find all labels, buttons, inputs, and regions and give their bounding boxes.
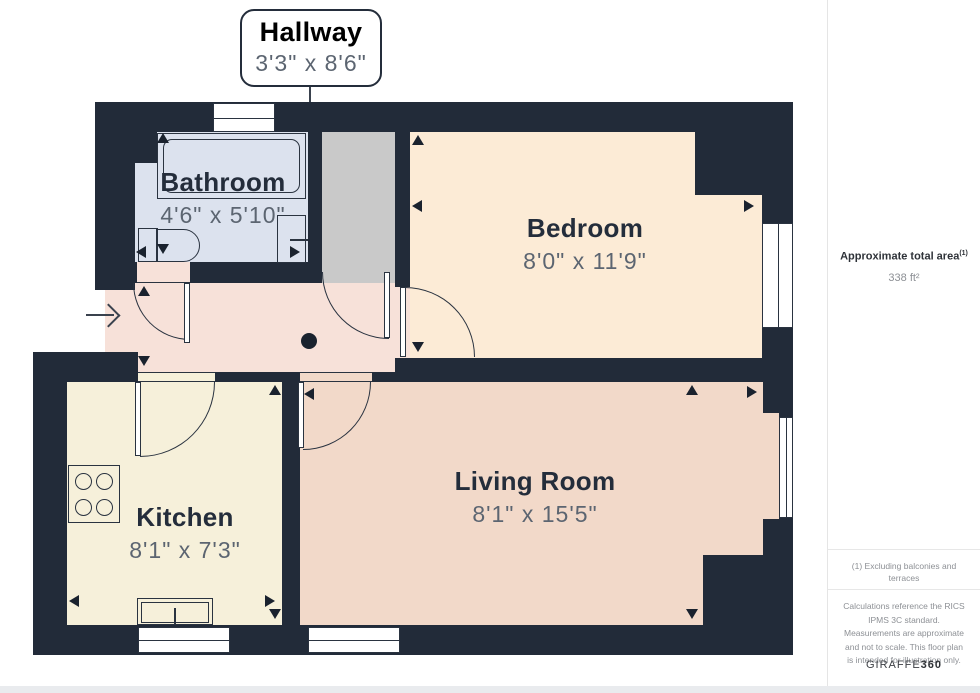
total-area-text: Approximate total area	[840, 251, 959, 263]
closet-floor	[322, 132, 395, 283]
living-room-side-window	[779, 417, 793, 518]
wall-left-lower	[33, 352, 67, 655]
hallway-callout: Hallway 3'3" x 8'6"	[240, 9, 382, 87]
sidebar-rule-bottom	[828, 589, 980, 590]
dimension-arrow-icon	[304, 388, 314, 400]
brand-name: GIRAFFE	[866, 659, 921, 671]
wall-bathroom-bottom-left	[95, 262, 137, 283]
wall-bedroom-living	[395, 358, 765, 382]
dimension-arrow-icon	[265, 595, 275, 607]
hallway-ceiling-point	[301, 333, 317, 349]
bedroom-dims: 8'0" x 11'9"	[460, 248, 710, 276]
disclaimer: Calculations reference the RICS IPMS 3C …	[842, 600, 966, 668]
wall-hallway-bottom-mid	[215, 372, 300, 382]
dimension-arrow-icon	[686, 385, 698, 395]
bathroom-name: Bathroom	[123, 168, 323, 197]
brand-logo: GIRAFFE360	[836, 659, 972, 671]
kitchen-window	[138, 627, 230, 653]
total-area-label: Approximate total area(1)	[836, 250, 972, 263]
sink-tap-line	[174, 608, 176, 625]
living-room-label: Living Room 8'1" x 15'5"	[405, 467, 665, 528]
page-bottom-strip	[0, 686, 980, 693]
hob-burner	[75, 473, 92, 490]
brand-suffix: 360	[921, 659, 942, 671]
wall-living-corner-notch	[703, 555, 763, 625]
dimension-arrow-icon	[69, 595, 79, 607]
dimension-arrow-icon	[412, 200, 422, 212]
wall-bathroom-bottom-right	[190, 262, 308, 283]
living-room-bottom-window	[308, 627, 400, 653]
total-area-value: 338 ft²	[836, 272, 972, 284]
dimension-arrow-icon	[138, 356, 150, 366]
bedroom-name: Bedroom	[460, 214, 710, 243]
hob-burner	[96, 473, 113, 490]
dimension-arrow-icon	[686, 609, 698, 619]
wall-bedroom-corner	[695, 132, 793, 195]
dimension-arrow-icon	[157, 244, 169, 254]
hob-burner	[75, 499, 92, 516]
closet-door-leaf	[384, 272, 390, 338]
bathroom-threshold	[137, 262, 190, 283]
dimension-arrow-icon	[138, 286, 150, 296]
footnote: (1) Excluding balconies and terraces	[836, 561, 972, 585]
callout-connector-line	[309, 85, 311, 102]
bathroom-label: Bathroom 4'6" x 5'10"	[123, 168, 323, 229]
sidebar-divider	[827, 0, 828, 686]
wall-top	[95, 102, 793, 132]
kitchen-label: Kitchen 8'1" x 7'3"	[95, 503, 275, 564]
bedroom-door-leaf	[400, 287, 406, 357]
kitchen-dims: 8'1" x 7'3"	[95, 537, 275, 565]
living-room-dims: 8'1" x 15'5"	[405, 501, 665, 529]
bathroom-dims: 4'6" x 5'10"	[123, 202, 323, 230]
wall-bathroom-notch	[135, 132, 157, 163]
wall-kitchen-top	[67, 352, 138, 382]
dimension-arrow-icon	[157, 133, 169, 143]
sink-connector-line	[290, 239, 308, 241]
wall-hallway-bottom-right	[372, 372, 395, 382]
living-room-threshold	[300, 372, 372, 382]
floor-plan-page: Bathroom 4'6" x 5'10" Bedroom 8'0" x 11'…	[0, 0, 980, 693]
hallway-name: Hallway	[260, 18, 363, 48]
dimension-arrow-icon	[290, 246, 300, 258]
kitchen-threshold	[138, 372, 215, 382]
kitchen-name: Kitchen	[95, 503, 275, 532]
bedroom-label: Bedroom 8'0" x 11'9"	[460, 214, 710, 275]
bedroom-window	[762, 223, 793, 328]
dimension-arrow-icon	[136, 246, 146, 258]
sidebar-rule-top	[828, 549, 980, 550]
dimension-arrow-icon	[744, 200, 754, 212]
dimension-arrow-icon	[412, 342, 424, 352]
wall-closet-bedroom	[395, 132, 410, 287]
living-room-bay-recess	[763, 413, 779, 519]
total-area-superscript: (1)	[959, 250, 968, 257]
kitchen-door-leaf	[135, 382, 141, 456]
dimension-arrow-icon	[747, 386, 757, 398]
hallway-top-window	[213, 103, 275, 132]
living-room-name: Living Room	[405, 467, 665, 496]
hallway-dims: 3'3" x 8'6"	[255, 50, 367, 78]
bathroom-door-leaf	[184, 283, 190, 343]
dimension-arrow-icon	[269, 609, 281, 619]
dimension-arrow-icon	[412, 135, 424, 145]
dimension-arrow-icon	[269, 385, 281, 395]
